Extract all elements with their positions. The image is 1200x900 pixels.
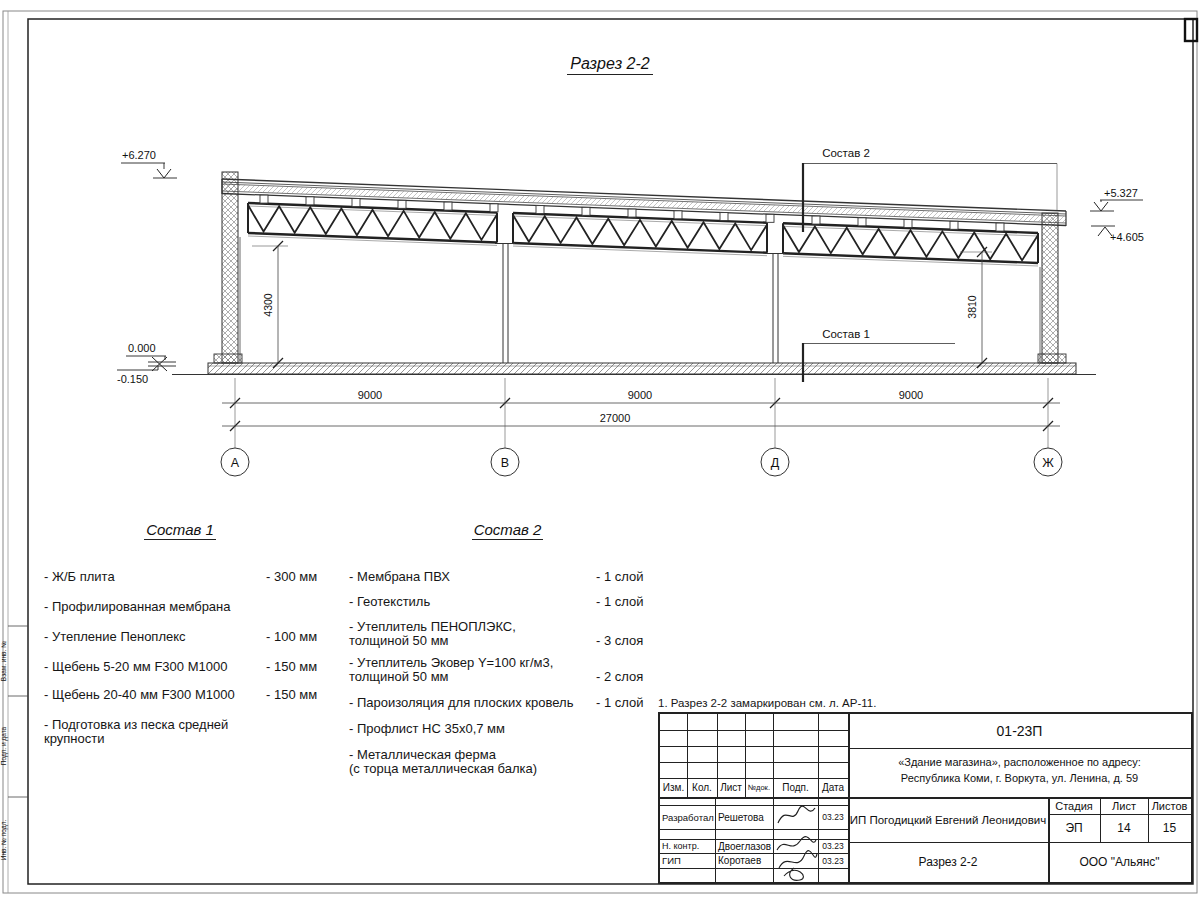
purlin-post xyxy=(352,199,360,207)
sostav2-item: - Геотекстиль xyxy=(349,595,430,609)
truss-bottom-chord xyxy=(783,253,1038,263)
level-arrow xyxy=(1098,227,1105,236)
title-block: Изм. Кол. Лист №док. Подп. Дата Разработ… xyxy=(658,712,1193,884)
purlin-post xyxy=(996,223,1004,231)
tb-line xyxy=(660,829,848,830)
purlin-post xyxy=(536,206,544,214)
dimension-texts: 9000 9000 9000 27000 4300 3810 xyxy=(262,293,978,424)
sostav2-item: - Металлическая ферма (с торца металличе… xyxy=(349,748,537,776)
tb-object-line2: Республика Коми, г. Воркута, ул. Ленина,… xyxy=(848,768,1191,788)
tb-sheets-label: Листов xyxy=(1148,797,1191,814)
tb-role: Разработал xyxy=(662,805,715,829)
sostav1-item: - Щебень 20-40 мм F300 М1000 xyxy=(44,688,235,702)
signature-razrabotal xyxy=(774,803,818,829)
elevation-texts: +6.270 +5.327 +4.605 0.000 -0.150 xyxy=(117,149,1144,385)
note-text: 1. Разрез 2-2 замаркирован см. л. АР-11. xyxy=(658,697,978,709)
tb-name: Коротаев xyxy=(718,853,773,868)
axis-letter: Ж xyxy=(1042,456,1054,470)
leader-texts: Состав 2 Состав 1 xyxy=(822,147,870,340)
truss-bottom-chord xyxy=(513,243,767,253)
tb-date: 03.23 xyxy=(818,853,848,868)
tb-sheets-value: 15 xyxy=(1148,814,1191,842)
axis-letter: А xyxy=(231,456,240,470)
sostav2-item: - Пароизоляция для плоских кровель xyxy=(349,696,573,710)
tb-line xyxy=(660,868,848,869)
sostav2-value: - 1 слой xyxy=(596,696,644,710)
span-dim: 9000 xyxy=(628,389,652,401)
purlin-post xyxy=(260,195,268,203)
sostav1-item: - Подготовка из песка средней крупности xyxy=(44,718,228,746)
floor-slab xyxy=(208,363,1076,374)
side-stamp-label: Инв. № подл. xyxy=(0,820,8,861)
purlin-post xyxy=(628,209,636,217)
tb-org: ООО "Альянс" xyxy=(1048,842,1191,882)
tb-name: Решетова xyxy=(718,805,773,829)
drawing-sheet: { "sheet": { "title": "Разрез 2-2", "not… xyxy=(0,0,1200,900)
tb-drawing-name: Разрез 2-2 xyxy=(848,842,1048,882)
sostav1-value: - 150 мм xyxy=(266,688,317,702)
sostav2-item: - Утеплитель ПЕНОПЛЭКС, толщиной 50 мм xyxy=(349,620,516,648)
right-footing xyxy=(1038,354,1066,363)
elevation-label: 0.000 xyxy=(128,342,156,354)
purlin-post xyxy=(490,204,498,212)
right-wall xyxy=(1042,213,1058,363)
tb-header-kol: Кол. xyxy=(687,778,717,797)
sostav1-value: - 100 мм xyxy=(266,630,317,644)
sostav2-item: - Мембрана ПВХ xyxy=(349,570,450,584)
tb-sheet-value: 14 xyxy=(1100,814,1148,842)
left-wall xyxy=(222,172,238,363)
tb-stage-label: Стадия xyxy=(1048,797,1100,814)
tb-header-izm: Изм. xyxy=(660,778,687,797)
sostav2-value: - 1 слой xyxy=(596,570,644,584)
sostav1-title-text: Состав 1 xyxy=(144,521,216,540)
tb-role: Н. контр. xyxy=(662,839,715,853)
total-dim: 27000 xyxy=(600,412,631,424)
side-stamp xyxy=(8,626,28,797)
tb-line xyxy=(848,748,1191,749)
drawing-title: Разрез 2-2 xyxy=(460,55,760,73)
sostav1-value: - 150 мм xyxy=(266,660,317,674)
sostav2-value: - 1 слой xyxy=(596,595,644,609)
purlin-post xyxy=(904,220,912,228)
level-arrow xyxy=(1101,202,1108,211)
truss-bottom-chord xyxy=(248,233,497,242)
purlin-post xyxy=(950,221,958,229)
tb-role: ГИП xyxy=(662,853,715,868)
sostav2-title-text: Состав 2 xyxy=(472,521,544,540)
elevation-label: -0.150 xyxy=(117,373,148,385)
purlin-post xyxy=(812,216,820,224)
height-dim-right: 3810 xyxy=(966,295,978,319)
tb-date: 03.23 xyxy=(818,805,848,829)
tb-date: 03.23 xyxy=(818,839,848,853)
tb-name: Двоеглазов xyxy=(718,839,773,853)
tb-line xyxy=(660,746,848,747)
sostav2-item: - Профлист НС 35х0,7 мм xyxy=(349,722,505,736)
signature-stroke xyxy=(778,806,815,823)
elevation-label: +5.327 xyxy=(1104,187,1138,199)
signature-gip xyxy=(774,834,818,881)
purlin-post xyxy=(720,213,728,221)
axis-letter: В xyxy=(501,456,509,470)
purlin-post xyxy=(398,200,406,208)
span-dim: 9000 xyxy=(899,389,923,401)
tb-company: ИП Погодицкий Евгений Леонидович xyxy=(848,797,1048,842)
purlin-post xyxy=(582,207,590,215)
side-stamp-label: Взам. инв. № xyxy=(0,641,7,681)
span-dim: 9000 xyxy=(358,389,382,401)
leader-label-sostav1: Состав 1 xyxy=(822,328,870,340)
tb-header-data: Дата xyxy=(818,778,848,797)
elevation-label: +4.605 xyxy=(1110,231,1144,243)
side-stamp-label: Подп. и дата xyxy=(0,726,8,765)
tb-header-podp: Подп. xyxy=(773,778,818,797)
tb-header-doc: №док. xyxy=(745,778,773,797)
purlin-post xyxy=(858,218,866,226)
tb-stage-value: ЭП xyxy=(1048,814,1100,842)
purlin-post xyxy=(306,197,314,205)
axis-letter: Д xyxy=(771,456,780,470)
tb-line xyxy=(660,730,848,731)
purlin-post xyxy=(674,211,682,219)
sostav2-item: - Утеплитель Эковер Y=100 кг/м3, толщино… xyxy=(349,656,553,684)
drawing-title-text: Разрез 2-2 xyxy=(567,55,652,75)
tb-doc-number: 01-23П xyxy=(848,714,1191,748)
leader-label-sostav2: Состав 2 xyxy=(822,147,870,159)
left-footing xyxy=(214,354,242,363)
elevation-label: +6.270 xyxy=(122,149,156,161)
sostav1-value: - 300 мм xyxy=(266,570,317,584)
signature-stroke xyxy=(779,851,817,881)
purlin-post xyxy=(444,202,452,210)
tb-line xyxy=(660,762,848,763)
sostav1-item: - Профилированная мембрана xyxy=(44,600,231,614)
level-arrow xyxy=(164,169,171,178)
tb-header-list: Лист xyxy=(717,778,745,797)
tb-sheet-label: Лист xyxy=(1100,797,1148,814)
height-dim-left: 4300 xyxy=(262,293,274,317)
sostav1-title: Состав 1 xyxy=(40,521,320,538)
sostav1-item: - Ж/Б плита xyxy=(44,570,115,584)
sostav1-item: - Щебень 5-20 мм F300 М1000 xyxy=(44,660,227,674)
signature-stroke xyxy=(777,837,816,850)
sostav2-value: - 3 слоя xyxy=(596,634,643,648)
sostav2-value: - 2 слоя xyxy=(596,670,643,684)
purlin-post xyxy=(766,214,774,222)
level-arrow xyxy=(157,169,164,178)
corner-box xyxy=(1185,19,1197,41)
level-arrow xyxy=(1094,202,1101,211)
sostav1-item: - Утепление Пеноплекс xyxy=(44,630,186,644)
axis-bubbles: А В Д Ж xyxy=(221,448,1062,476)
sostav2-title: Состав 2 xyxy=(350,521,665,538)
